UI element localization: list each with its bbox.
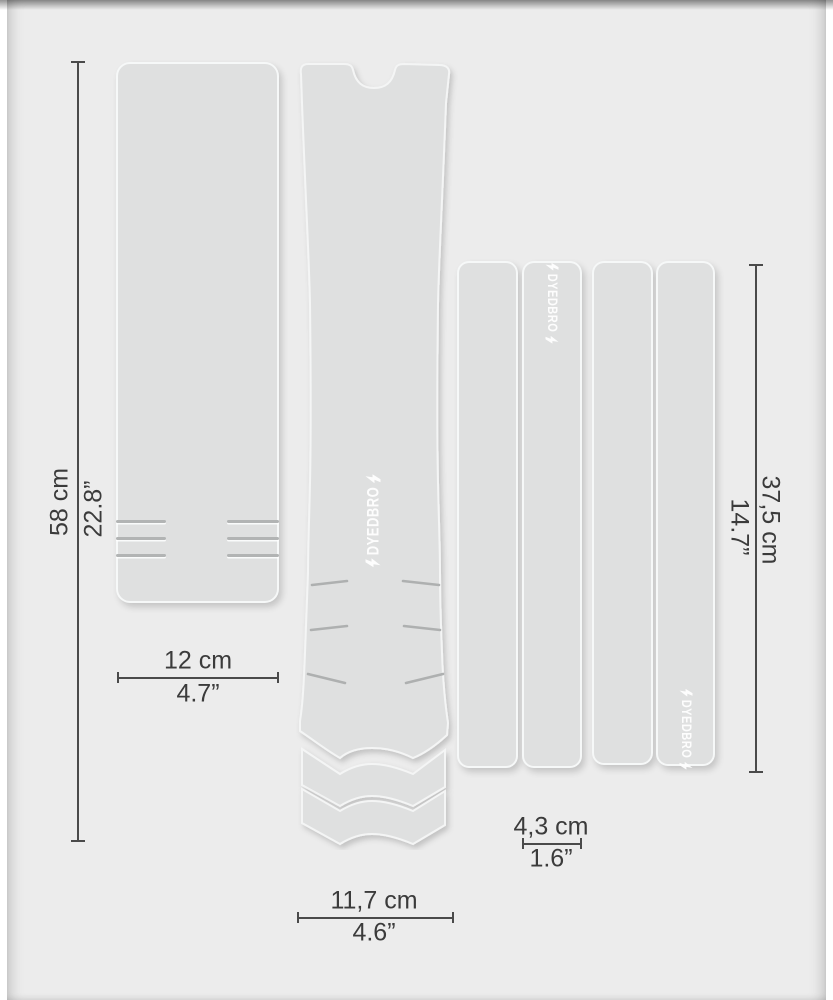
dimension-label-cm: 37,5 cm: [758, 476, 783, 565]
vent-slit: [116, 554, 166, 557]
dimension-label-cm: 58 cm: [48, 468, 73, 536]
logo-wordmark: DYEDBRO: [364, 487, 383, 556]
lightning-bolt-icon: [366, 558, 381, 567]
lightning-bolt-icon: [546, 335, 559, 343]
downtube-protector-body: [300, 64, 449, 758]
vent-slit: [227, 537, 279, 540]
stay-guard-strip-3: [592, 261, 653, 765]
logo-wordmark: DYEDBRO: [545, 274, 560, 333]
dimension-tick: [452, 912, 454, 923]
vent-slit: [116, 537, 166, 540]
lightning-bolt-icon: [680, 689, 693, 697]
height-dimension-line: [77, 62, 79, 842]
downtube-protector: [288, 58, 460, 850]
dimension-label-inch: 1.6”: [529, 847, 572, 872]
dimension-label-cm: 11,7 cm: [330, 889, 417, 914]
top-tube-protector: [116, 62, 279, 603]
lightning-bolt-icon: [680, 761, 693, 769]
vent-slit: [116, 520, 166, 523]
logo-wordmark: DYEDBRO: [679, 700, 694, 759]
dimension-tick: [749, 264, 763, 266]
vent-slit: [227, 554, 279, 557]
chevron-band-1: [302, 749, 445, 806]
dimension-label-inch: 4.6”: [352, 921, 395, 946]
dimension-tick: [117, 672, 119, 683]
dimension-tick: [277, 672, 279, 683]
dimension-tick: [71, 840, 85, 842]
dimension-label-cm: 4,3 cm: [513, 815, 588, 840]
dyedbro-logo: DYEDBRO: [680, 689, 693, 770]
dimension-tick: [749, 771, 763, 773]
lightning-bolt-icon: [546, 263, 559, 271]
dyedbro-logo: DYEDBRO: [546, 263, 559, 344]
dimension-label-inch: 4.7”: [176, 682, 219, 707]
dimension-tick: [297, 912, 299, 923]
width-dimension-line: [118, 677, 278, 679]
dyedbro-logo: DYEDBRO: [366, 475, 381, 568]
lightning-bolt-icon: [366, 475, 381, 484]
dimension-label-cm: 12 cm: [164, 649, 232, 674]
dimension-tick: [71, 61, 85, 63]
dimension-label-inch: 14.7”: [727, 499, 752, 556]
stay-guard-strip-1: [457, 261, 518, 768]
vent-slit: [227, 520, 279, 523]
dimension-label-inch: 22.8”: [82, 481, 107, 538]
